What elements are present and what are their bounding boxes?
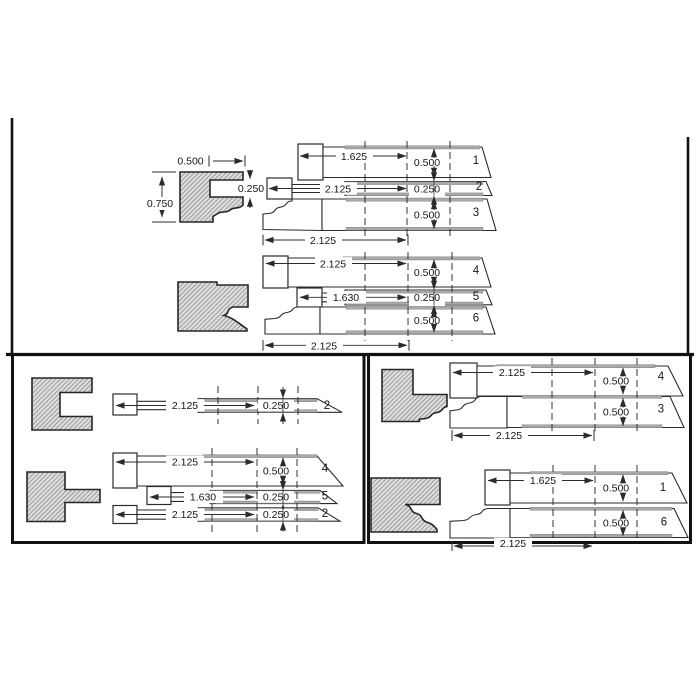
dim-label: 2.125	[320, 259, 346, 271]
dim-label: 2.125	[172, 457, 198, 469]
bar-number: 2	[322, 508, 328, 520]
bar4-edge-band	[343, 257, 480, 260]
dim-label: 2.125	[310, 235, 336, 247]
dim-label: 0.500	[414, 315, 440, 327]
hatched-profile-c	[32, 378, 92, 430]
dim-label: 0.250	[414, 184, 440, 196]
bar-number: 4	[473, 265, 480, 277]
bar5-collar	[147, 487, 171, 505]
bottom-left-panel: 2.125 0.250 2 2.125	[13, 355, 365, 543]
dim-label: 2.125	[311, 340, 337, 352]
dim-label: 0.500	[414, 210, 440, 222]
dim-label: 2.125	[172, 400, 198, 412]
dim-label: 0.500	[603, 483, 629, 495]
dim-label: 0.500	[263, 466, 289, 478]
profile-a-width-dim: 0.500	[177, 156, 245, 168]
top-group1: 1.625 0.500 1 2.125 0.250 2 0.500 3	[263, 141, 496, 247]
bar-number: 1	[473, 155, 479, 167]
dim-label: 1.630	[190, 492, 216, 504]
bar3-edge-band	[522, 395, 662, 398]
bar-number: 5	[473, 291, 479, 303]
bar-number: 4	[322, 463, 329, 475]
bottom-right-panel: 2.125 0.500 4 0.500 3 2.125	[369, 355, 691, 552]
dim-label: 1.625	[530, 475, 556, 487]
bar3-profile-end	[450, 397, 507, 429]
br-group2-total-dim: 2.125	[452, 538, 592, 551]
dim-label: 1.630	[333, 292, 359, 304]
bl-group1: 2.125 0.250 2	[113, 386, 342, 424]
bar1-collar	[485, 470, 510, 505]
dim-label: 0.500	[603, 376, 629, 388]
bar6-edge-band	[530, 507, 672, 510]
bar6-edge-band	[346, 306, 483, 309]
diagram-canvas: 0.500 0.750 0.250	[0, 0, 700, 700]
bar6-profile-end	[450, 509, 510, 539]
bar3-edge-band	[346, 227, 483, 230]
br-group1: 2.125 0.500 4 0.500 3 2.125	[450, 358, 684, 442]
br-group1-total-dim: 2.125	[452, 429, 594, 442]
bar-number: 1	[660, 482, 666, 494]
bar3-edge-band	[522, 425, 662, 428]
dim-label: 2.125	[496, 430, 522, 442]
dim-label: 0.250	[238, 183, 264, 195]
group2-total-dim: 2.125	[263, 339, 409, 352]
hatched-profile-e	[382, 370, 447, 422]
dim-label: 2.125	[172, 509, 198, 521]
hatched-profile-d	[27, 472, 100, 522]
dim-label: 2.125	[500, 538, 526, 550]
bar-number: 3	[658, 404, 664, 416]
top-group2: 2.125 0.500 4 1.630 0.250 5 0.500 6	[263, 252, 495, 352]
dim-label: 0.500	[603, 407, 629, 419]
bar2-collar	[113, 394, 137, 415]
bar-number: 6	[473, 313, 479, 325]
dim-label: 0.250	[414, 292, 440, 304]
profile-a-height-dim: 0.750	[146, 172, 177, 222]
bl-group2: 2.125 0.500 4 1.630 0.250 5 2.125 0.250 …	[113, 448, 343, 533]
bar4-collar	[113, 453, 137, 488]
bar4-collar	[450, 363, 477, 398]
dim-label: 1.625	[341, 151, 367, 163]
hatched-profile-f	[371, 478, 440, 532]
group1-total-dim: 2.125	[263, 234, 408, 247]
dim-label: 0.500	[603, 518, 629, 530]
bar6-profile-end	[265, 307, 320, 334]
bar-number: 3	[473, 207, 479, 219]
bar4-edge-band	[203, 455, 317, 458]
bar-number: 5	[322, 491, 328, 503]
br-group2: 1.625 0.500 1 0.500 6 2.125	[450, 465, 688, 551]
bar3-edge-band	[346, 198, 483, 201]
bar6-edge-band	[346, 331, 483, 334]
dim-label: 0.500	[177, 156, 203, 168]
dim-label: 0.250	[263, 492, 289, 504]
hatched-profile-a	[180, 172, 243, 222]
hatched-profile-b	[178, 282, 248, 331]
dim-label: 0.250	[263, 400, 289, 412]
bar-number: 4	[658, 371, 665, 383]
knife-setup-diagram-page: 0.500 0.750 0.250	[0, 0, 700, 700]
dim-label: 0.500	[414, 157, 440, 169]
bar3-profile-end	[263, 199, 322, 231]
bar-number: 2	[324, 400, 330, 412]
dim-label: 0.250	[263, 509, 289, 521]
dim-label: 0.500	[414, 267, 440, 279]
bar-number: 2	[476, 181, 482, 193]
bar6-edge-band	[530, 534, 672, 537]
bar4-collar	[263, 256, 288, 288]
bar1-collar	[298, 144, 323, 180]
dim-label: 2.125	[499, 367, 525, 379]
dim-label: 2.125	[325, 184, 351, 196]
bar6-body	[320, 307, 495, 334]
dim-label: 0.750	[147, 198, 173, 210]
bar-number: 6	[661, 517, 667, 529]
top-panel: 0.500 0.750 0.250	[12, 118, 688, 356]
